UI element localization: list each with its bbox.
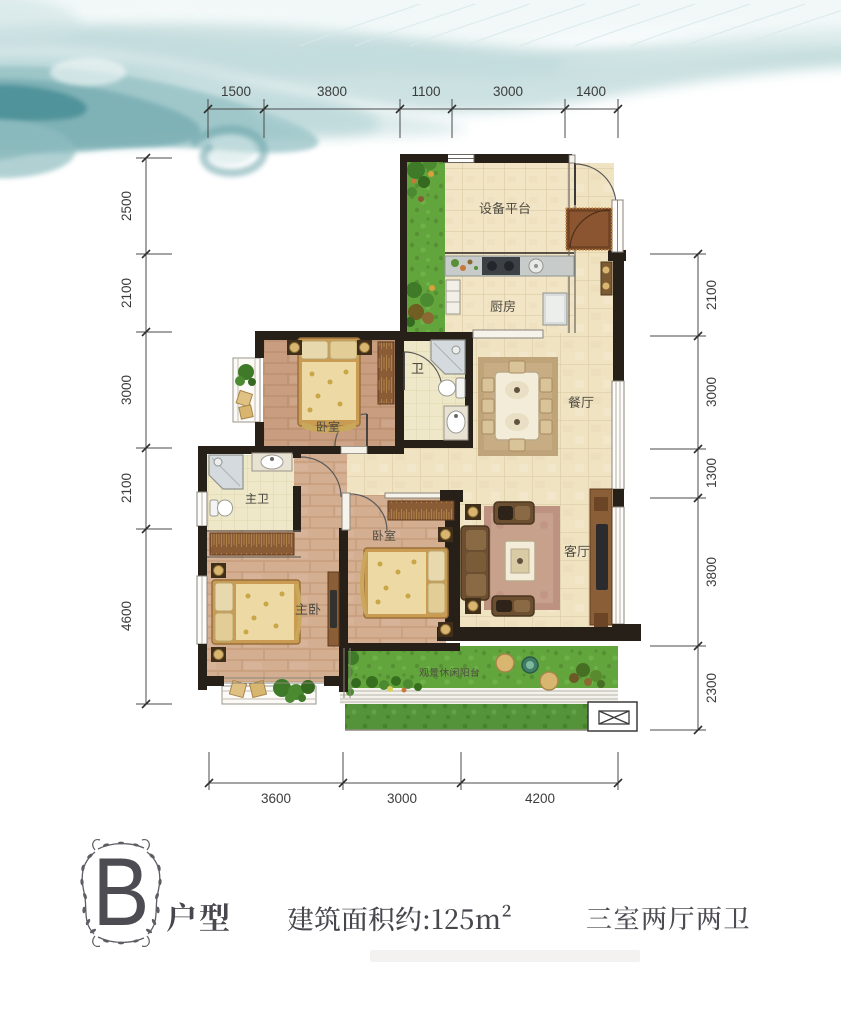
svg-text:1300: 1300 — [704, 458, 719, 488]
svg-text:1400: 1400 — [576, 84, 606, 99]
svg-text:3000: 3000 — [704, 377, 719, 407]
svg-text:B: B — [93, 838, 150, 946]
svg-text:2100: 2100 — [119, 473, 134, 503]
svg-text:3800: 3800 — [704, 557, 719, 587]
svg-text:4200: 4200 — [525, 791, 555, 806]
svg-text:1500: 1500 — [221, 84, 251, 99]
svg-text:3000: 3000 — [493, 84, 523, 99]
svg-text:2500: 2500 — [119, 191, 134, 221]
svg-text:2300: 2300 — [704, 673, 719, 703]
svg-text:3600: 3600 — [261, 791, 291, 806]
svg-text:2100: 2100 — [704, 280, 719, 310]
svg-text:4600: 4600 — [119, 601, 134, 631]
svg-text:3800: 3800 — [317, 84, 347, 99]
svg-text:3000: 3000 — [119, 375, 134, 405]
svg-text:3000: 3000 — [387, 791, 417, 806]
svg-text:1100: 1100 — [411, 84, 440, 99]
svg-text:2100: 2100 — [119, 278, 134, 308]
